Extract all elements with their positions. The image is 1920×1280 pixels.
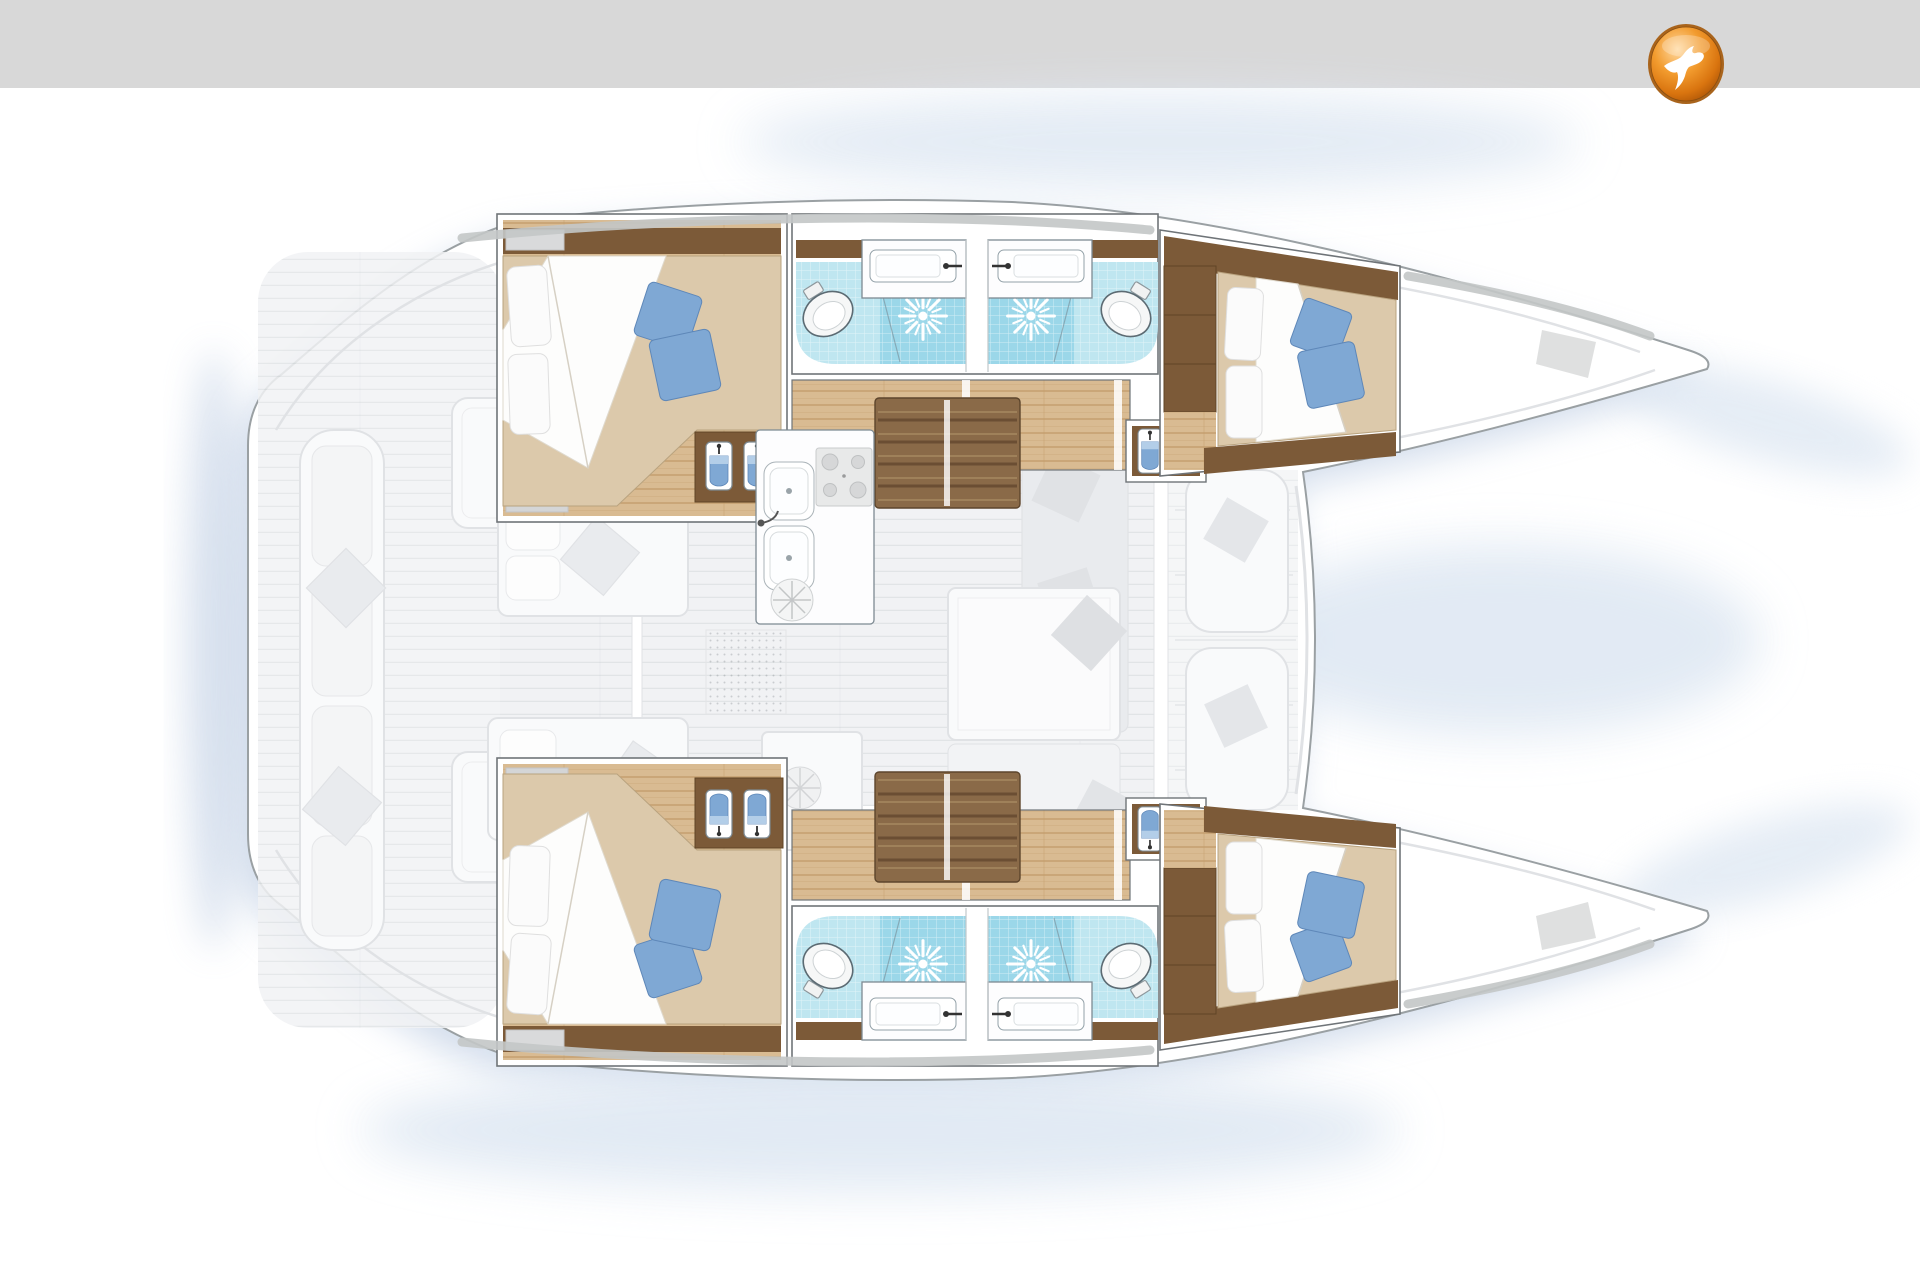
wardrobe [1164, 266, 1216, 412]
pillow [1224, 287, 1264, 361]
pillow [506, 265, 551, 348]
blue-cushion [1297, 341, 1366, 410]
cabin-port-aft [497, 214, 787, 522]
pillow [1226, 366, 1262, 438]
galley [756, 430, 874, 624]
saloon-front-wall [1154, 460, 1168, 820]
cabin-port-forward [1160, 230, 1400, 476]
bathrooms-port [788, 214, 1165, 374]
blue-cushion [648, 328, 722, 402]
pillow [506, 556, 560, 600]
catamaran-floorplan [0, 0, 1920, 1280]
bench-cushion [312, 446, 372, 566]
page [0, 0, 1920, 1280]
brand-logo [1646, 22, 1726, 106]
galley-mat [706, 630, 786, 714]
companionway-stairs [875, 398, 1020, 508]
pillow [508, 353, 551, 434]
bench-cushion [312, 836, 372, 936]
